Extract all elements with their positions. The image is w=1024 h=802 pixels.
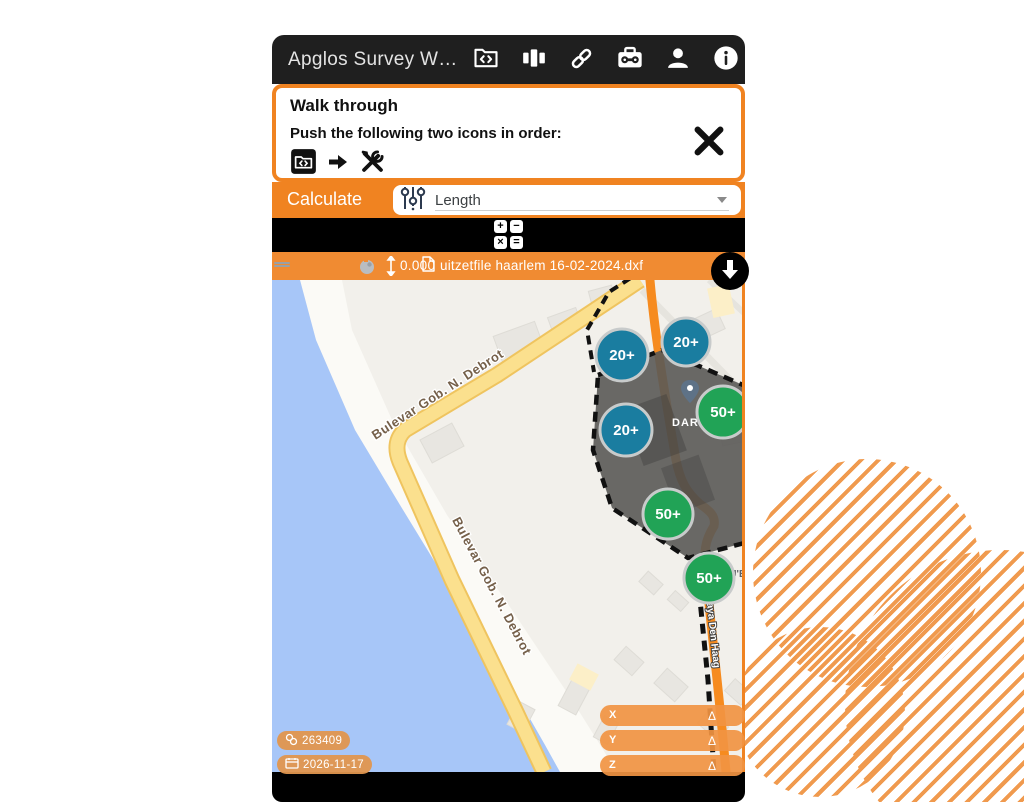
status-bar: 0.000 uitzetfile haarlem 16-02-2024.dxf bbox=[272, 252, 745, 280]
download-arrow-icon bbox=[720, 259, 740, 284]
svg-text:50+: 50+ bbox=[696, 570, 722, 587]
walkthrough-title: Walk through bbox=[290, 96, 727, 116]
date-icon bbox=[285, 757, 299, 773]
sliders-icon bbox=[399, 185, 427, 216]
minus-key[interactable]: − bbox=[510, 220, 523, 233]
walkthrough-close-button[interactable] bbox=[691, 124, 727, 160]
cluster-marker[interactable]: 50+ bbox=[684, 553, 734, 603]
app-window: Apglos Survey W… bbox=[272, 35, 745, 802]
file-icon bbox=[422, 256, 435, 275]
file-name: uitzetfile haarlem 16-02-2024.dxf bbox=[440, 258, 643, 273]
app-title: Apglos Survey W… bbox=[288, 49, 458, 71]
date-badge[interactable]: 2026-11-17 bbox=[277, 755, 372, 774]
coordinate-row-z[interactable]: Z Δ bbox=[600, 755, 745, 776]
chevron-down-icon bbox=[717, 197, 727, 203]
svg-text:20+: 20+ bbox=[673, 334, 699, 351]
calculator-bar: + − × = bbox=[272, 218, 745, 252]
map-right-border bbox=[742, 280, 745, 772]
point-count-value: 263409 bbox=[302, 735, 342, 747]
download-button[interactable] bbox=[711, 252, 749, 290]
points-icon bbox=[285, 733, 298, 749]
cluster-marker[interactable]: 50+ bbox=[697, 386, 745, 438]
link-icon bbox=[568, 45, 595, 75]
arrow-right-icon bbox=[326, 150, 350, 179]
delta-symbol: Δ bbox=[708, 734, 716, 748]
calculator-icon: + − × = bbox=[494, 220, 523, 249]
delta-symbol: Δ bbox=[708, 759, 716, 773]
striped-decoration-circle bbox=[735, 627, 905, 797]
gnss-status-icon bbox=[358, 257, 376, 280]
info-button[interactable] bbox=[706, 40, 746, 80]
calculate-label: Calculate bbox=[287, 189, 362, 210]
toolbox-button[interactable] bbox=[610, 40, 650, 80]
walkthrough-instruction: Push the following two icons in order: bbox=[290, 125, 727, 142]
cluster-marker[interactable]: 50+ bbox=[643, 489, 693, 539]
map-view[interactable]: DARG J'B Bulevar Gob. N. Debrot Bulevar … bbox=[272, 280, 745, 772]
columns-button[interactable] bbox=[514, 40, 554, 80]
code-folder-button[interactable] bbox=[466, 40, 506, 80]
vertical-accuracy-icon bbox=[386, 256, 396, 281]
coordinate-row-x[interactable]: X Δ bbox=[600, 705, 745, 726]
info-icon bbox=[712, 44, 740, 75]
coordinate-row-y[interactable]: Y Δ bbox=[600, 730, 745, 751]
multiply-key[interactable]: × bbox=[494, 236, 507, 249]
toolbox-icon bbox=[616, 44, 644, 75]
point-count-badge[interactable]: 263409 bbox=[277, 731, 350, 750]
columns-icon bbox=[521, 45, 547, 74]
cluster-marker[interactable]: 20+ bbox=[600, 404, 652, 456]
delta-symbol: Δ bbox=[708, 709, 716, 723]
screenshot-canvas: Apglos Survey W… bbox=[0, 0, 1024, 802]
selected-calculation: Length bbox=[435, 192, 481, 209]
svg-text:20+: 20+ bbox=[609, 347, 635, 364]
loaded-file-button[interactable]: uitzetfile haarlem 16-02-2024.dxf bbox=[422, 256, 643, 275]
axis-label: Y bbox=[609, 734, 616, 746]
calculate-bar: Calculate Length bbox=[272, 182, 745, 218]
swipe-indicator-icon bbox=[274, 261, 290, 269]
date-value: 2026-11-17 bbox=[303, 759, 364, 771]
walkthrough-panel: Walk through Push the following two icon… bbox=[272, 84, 745, 182]
plus-key[interactable]: + bbox=[494, 220, 507, 233]
calculation-type-dropdown[interactable]: Length bbox=[393, 185, 741, 215]
equals-key[interactable]: = bbox=[510, 236, 523, 249]
user-button[interactable] bbox=[658, 40, 698, 80]
axis-label: X bbox=[609, 709, 616, 721]
svg-text:50+: 50+ bbox=[655, 506, 681, 523]
cluster-marker[interactable]: 20+ bbox=[596, 329, 648, 381]
svg-text:50+: 50+ bbox=[710, 404, 736, 421]
top-toolbar: Apglos Survey W… bbox=[272, 35, 745, 84]
svg-text:20+: 20+ bbox=[613, 422, 639, 439]
user-icon bbox=[664, 44, 692, 75]
close-icon bbox=[692, 146, 726, 161]
bottom-black-strip bbox=[272, 772, 745, 802]
code-folder-icon bbox=[472, 44, 500, 75]
link-button[interactable] bbox=[562, 40, 602, 80]
tools-icon bbox=[359, 148, 386, 180]
axis-label: Z bbox=[609, 759, 616, 771]
dropdown-underline bbox=[435, 210, 729, 211]
cluster-marker[interactable]: 20+ bbox=[662, 318, 710, 366]
code-folder-black-icon bbox=[290, 148, 317, 180]
